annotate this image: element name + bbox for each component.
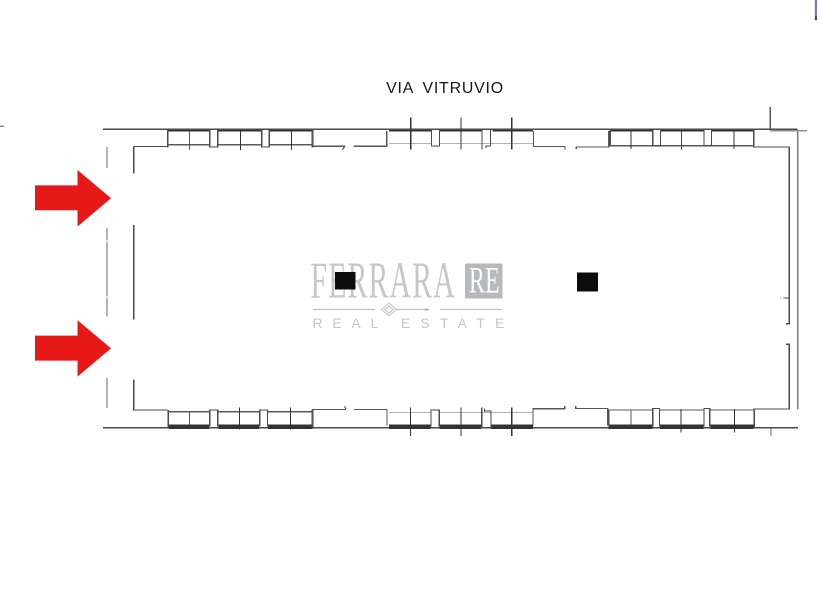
svg-text:ESTATE: ESTATE — [401, 316, 515, 331]
svg-text:VIA VITRUVIO: VIA VITRUVIO — [386, 80, 504, 97]
svg-text:REAL: REAL — [313, 316, 389, 331]
svg-text:FERRARA: FERRARA — [311, 253, 456, 309]
svg-text:RE: RE — [469, 260, 500, 301]
